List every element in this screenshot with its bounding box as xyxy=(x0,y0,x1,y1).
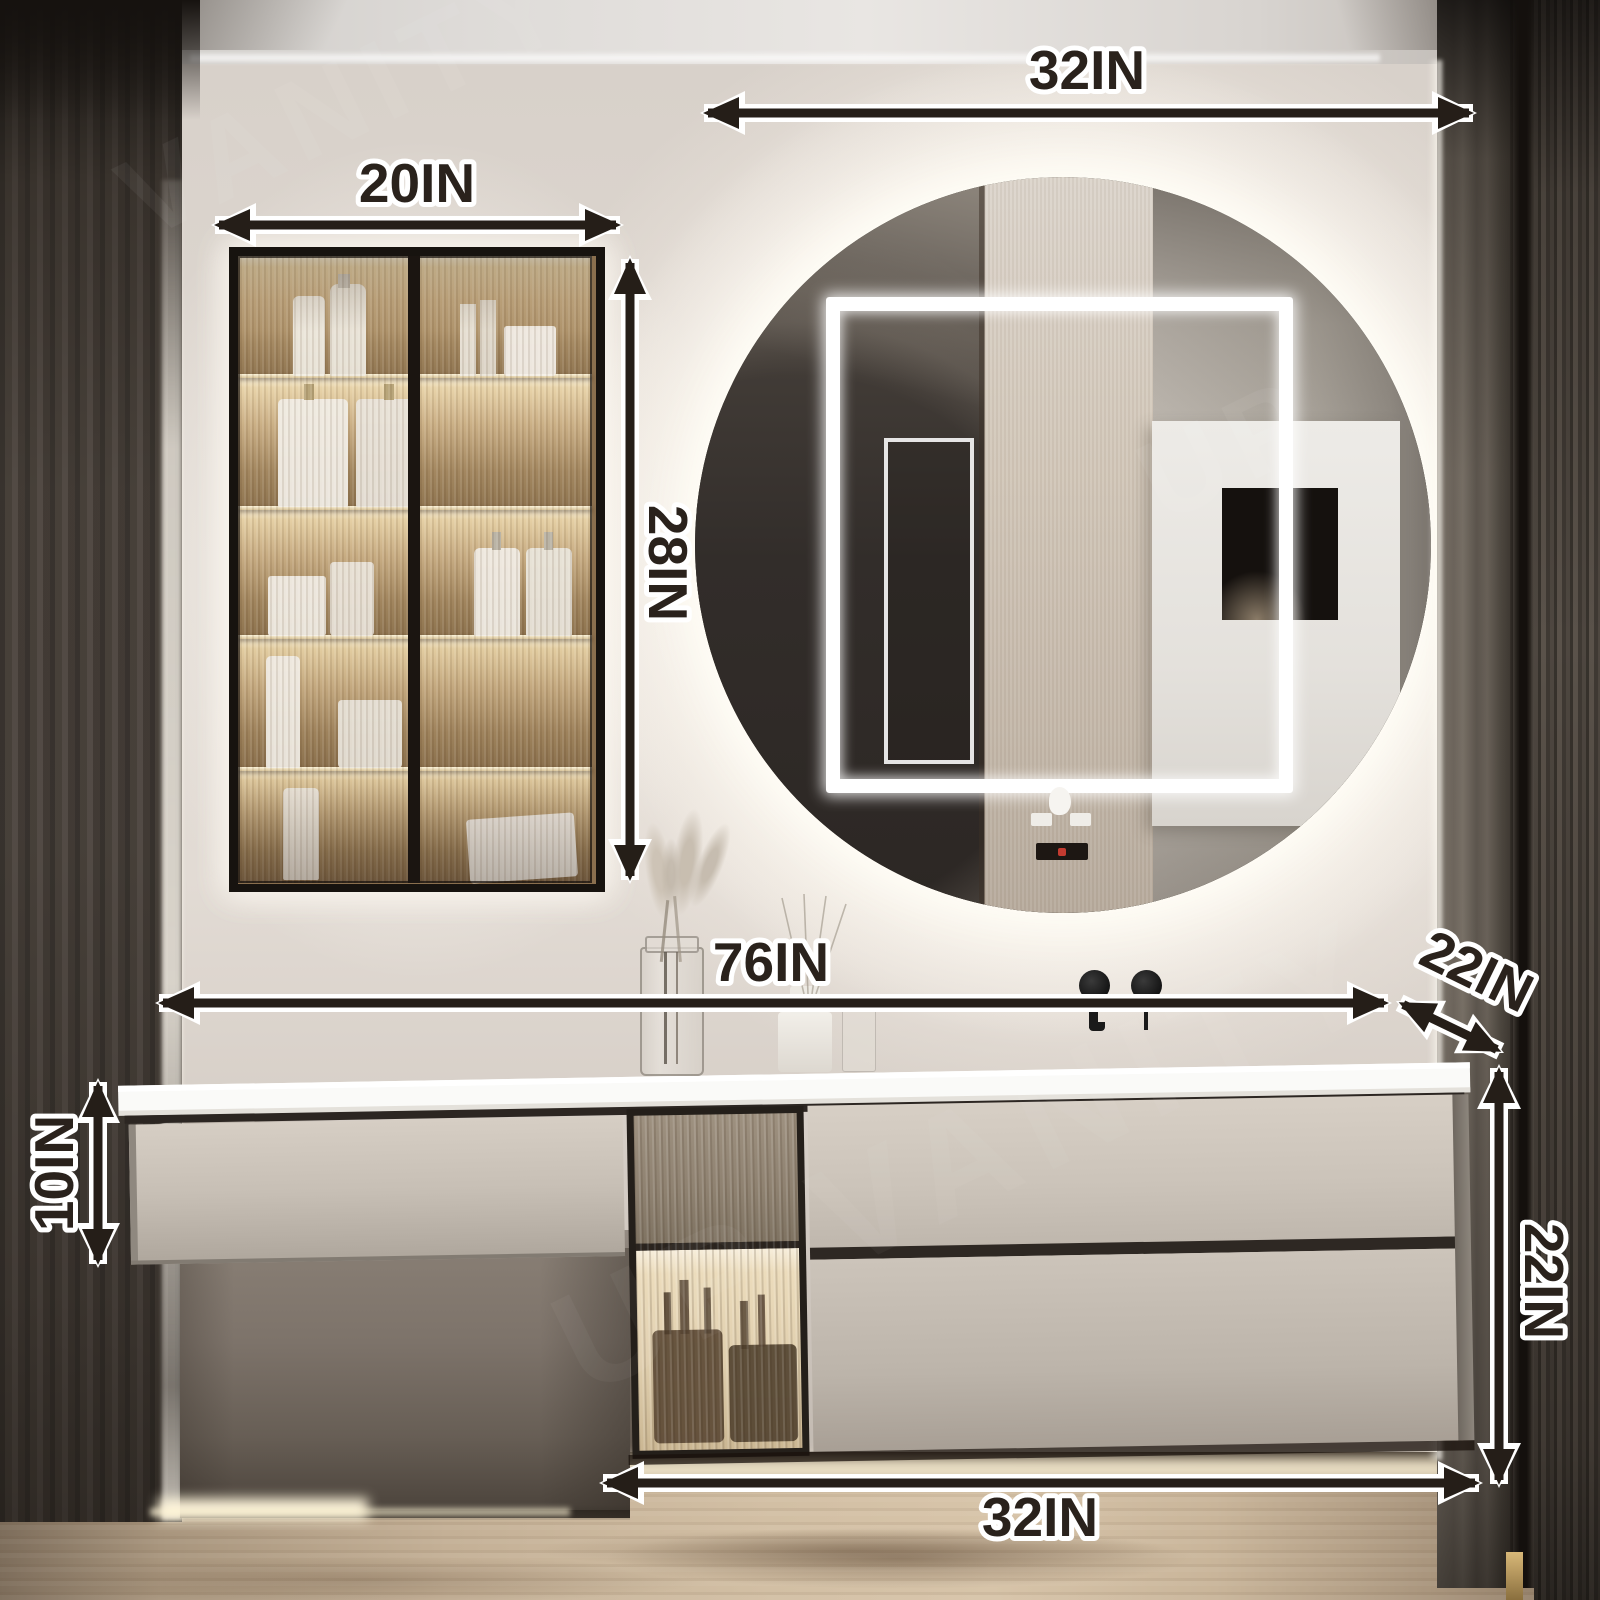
svg-text:20IN: 20IN xyxy=(359,152,475,214)
svg-text:32IN: 32IN xyxy=(982,1486,1098,1548)
svg-text:32IN: 32IN xyxy=(1029,39,1145,101)
svg-text:76IN: 76IN xyxy=(713,931,829,993)
svg-text:10IN: 10IN xyxy=(23,1115,85,1231)
svg-text:22IN: 22IN xyxy=(1513,1223,1575,1339)
svg-text:28IN: 28IN xyxy=(637,505,699,621)
